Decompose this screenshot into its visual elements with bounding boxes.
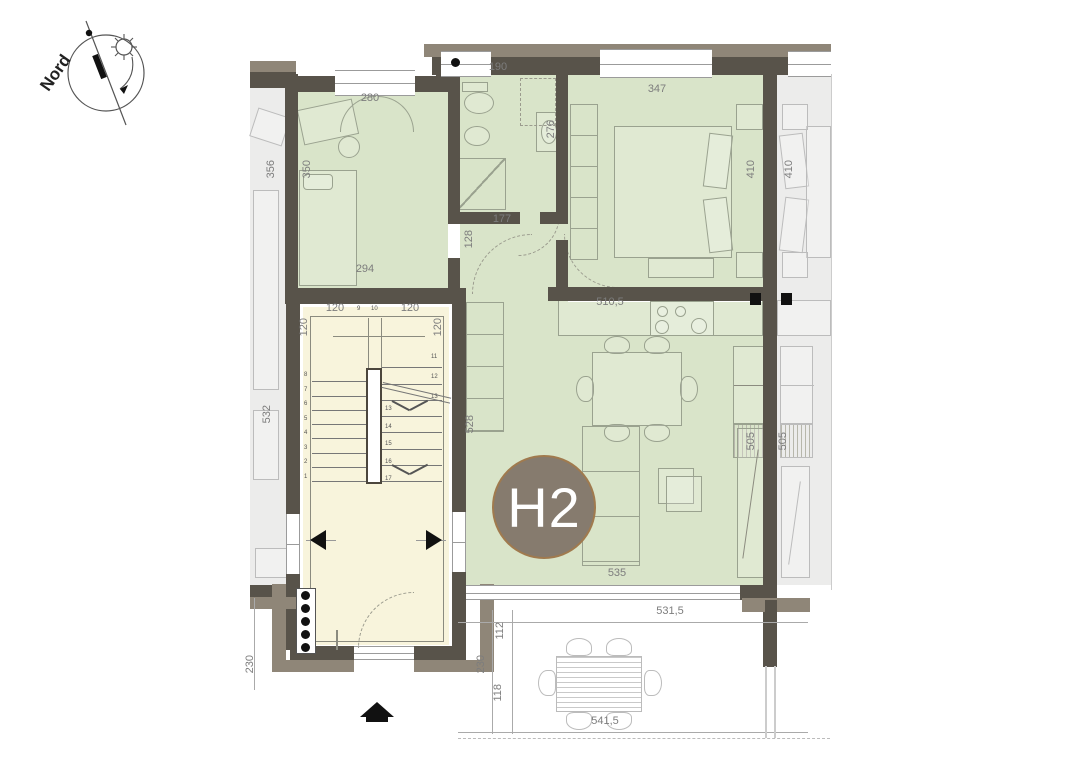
shower-tray <box>458 158 506 210</box>
neighbor-right-edge <box>831 74 832 590</box>
toilet-tank <box>462 82 488 92</box>
burner <box>657 306 668 317</box>
patio-table <box>556 656 642 712</box>
stair-center-numbers: 1314151617 <box>385 406 392 482</box>
compass-axis-line <box>86 21 126 125</box>
neighbor-right-bed <box>806 126 831 258</box>
dim-terrace-offset-bottom: 118 <box>493 684 504 702</box>
toilet-bowl <box>464 92 494 114</box>
bed-bench <box>648 258 714 278</box>
dim-terrace-offset-top: 112 <box>495 622 506 640</box>
neighbor-right-sideboard <box>781 466 810 578</box>
mailbox-dot <box>301 591 310 600</box>
sun-rays <box>111 34 137 60</box>
dim-stair-top-right: 120 <box>390 303 430 314</box>
terrace-divider-1 <box>765 666 767 738</box>
unit-badge: H2 <box>492 455 596 559</box>
patio-chair <box>566 638 592 656</box>
hall-door-left-unit <box>286 514 300 574</box>
wall-hall-bottom-right <box>414 646 466 660</box>
dim-master-window: 347 <box>635 84 679 95</box>
dim-neighbor-left-living: 532 <box>262 405 273 423</box>
neighbor-right-nightstand-top <box>782 104 808 130</box>
compass-top-dot <box>86 30 92 36</box>
desk-chair <box>338 136 360 158</box>
mailbox-dot <box>301 617 310 626</box>
stair-spine-wall <box>366 368 382 484</box>
neighbor-left-bed-foot <box>255 548 289 578</box>
porch-insulation-left <box>272 584 286 662</box>
stair-left-flight <box>312 368 366 482</box>
neighbor-right-counter <box>777 300 831 336</box>
mailbox-dot <box>301 604 310 613</box>
dim-terrace-depth: 230 <box>476 655 487 673</box>
patio-chair <box>538 670 556 696</box>
wall-bed-bath-divider <box>448 74 460 214</box>
north-compass: Nord <box>40 15 200 135</box>
compass-arc-arrow <box>120 57 133 89</box>
dim-master-height: 410 <box>746 160 757 178</box>
nightstand-bottom <box>736 252 763 278</box>
dim-porch-left-depth: 230 <box>245 655 256 673</box>
terrace-chain-v1 <box>512 610 513 734</box>
dim-hall-height: 128 <box>464 230 475 248</box>
dim-living-width: 535 <box>595 568 639 579</box>
burner <box>691 318 707 334</box>
hall-closet <box>466 302 504 432</box>
dim-hall-width: 177 <box>482 214 522 225</box>
terrace-chain-v2 <box>492 610 493 734</box>
wall-bedroom-left <box>285 74 298 302</box>
dining-chair <box>644 336 670 354</box>
terrace-divider-2 <box>774 666 776 738</box>
wall-hall-right-lower <box>452 572 466 650</box>
dim-living-right: 505 <box>746 432 757 450</box>
wall-stair-right <box>452 302 466 512</box>
stair-right-numbers: 111213 <box>431 354 438 400</box>
dim-bedroom-height: 350 <box>302 160 313 178</box>
bidet <box>464 126 490 146</box>
hall-door-right-unit <box>452 512 466 572</box>
dim-terrace-bottom-width: 541,5 <box>580 716 630 727</box>
porch-left-line <box>254 598 255 690</box>
dim-neighbor-right-living: 505 <box>778 432 789 450</box>
dim-bedroom-width: 294 <box>340 264 390 275</box>
terrace-top-line <box>458 622 808 623</box>
dim-stair-right: 120 <box>433 318 444 336</box>
burner <box>655 320 669 334</box>
dim-living-height: 528 <box>465 415 476 433</box>
entrance-arrow-icon <box>360 702 394 717</box>
column-dot <box>451 58 460 67</box>
outer-insulation-left-top <box>250 61 296 72</box>
stair-num-10: 10 <box>371 306 378 312</box>
patio-chair <box>644 670 662 696</box>
dining-chair <box>576 376 594 402</box>
wall-kitchen-top <box>548 287 776 301</box>
wall-bath-master-divider <box>556 57 568 215</box>
wall-bath-bottom-stub <box>540 212 568 224</box>
dining-chair <box>680 376 698 402</box>
dining-chair <box>604 336 630 354</box>
master-window <box>600 49 712 78</box>
neighbor-right-window <box>788 51 831 77</box>
dim-neighbor-right-bedroom: 410 <box>784 160 795 178</box>
coffee-table-2 <box>666 476 702 512</box>
flue-left <box>750 293 761 305</box>
floor-plan-page: { "compass": { "label": "Nord" }, "unit_… <box>0 0 1076 780</box>
mailbox-dot <box>301 630 310 639</box>
dim-neighbor-left-bedroom: 356 <box>266 160 277 178</box>
dining-chair <box>644 424 670 442</box>
sun-icon <box>116 39 132 55</box>
stair-num-9: 9 <box>357 306 360 312</box>
stair-spine-ext-l <box>368 318 369 368</box>
flue-right <box>781 293 792 305</box>
dim-stair-top-left: 120 <box>315 303 355 314</box>
terrace-dashed-edge <box>458 738 830 739</box>
door-arrow-left-icon <box>310 530 326 550</box>
neighbor-right-nightstand-bottom <box>782 252 808 278</box>
stair-dim-line <box>333 336 425 337</box>
cooktop <box>650 301 714 336</box>
dim-bath-basin: 276 <box>546 120 557 138</box>
dim-terrace-width: 531,5 <box>645 606 695 617</box>
wall-party <box>763 57 777 667</box>
nightstand-top <box>736 104 763 130</box>
dim-bath-width: 190 <box>478 62 518 73</box>
stair-left-numbers: 87654321 <box>304 372 307 480</box>
neighbor-left-counter <box>253 190 279 390</box>
dim-kitchen-width: 510,5 <box>585 297 635 308</box>
burner <box>675 306 686 317</box>
entrance-arrow-stem <box>366 717 388 722</box>
neighbor-right-sink-unit <box>780 346 813 424</box>
entrance-door-opening <box>354 646 414 660</box>
bathroom-shaft-dashed <box>520 78 556 126</box>
dim-stair-left: 120 <box>299 318 310 336</box>
unit-badge-label: H2 <box>507 475 581 540</box>
compass-arrowhead-icon <box>120 85 128 94</box>
wall-master-corridor-stub <box>556 240 568 288</box>
north-needle-icon <box>95 55 104 78</box>
terrace-bottom-line <box>458 732 808 733</box>
entrance-door-leaf <box>336 630 338 650</box>
tv-sideboard <box>737 428 766 578</box>
dining-table <box>592 352 682 426</box>
wall-stair-top <box>285 288 466 304</box>
sliding-glass-door <box>466 585 740 600</box>
door-arrow-right-icon <box>426 530 442 550</box>
porch-insulation-bottom-left <box>272 660 354 672</box>
wall-party-terrace <box>765 600 777 666</box>
kitchen-sink-unit <box>733 346 766 424</box>
patio-chair <box>606 638 632 656</box>
mailbox-dot <box>301 643 310 652</box>
dim-bedroom-window: 280 <box>345 93 395 104</box>
